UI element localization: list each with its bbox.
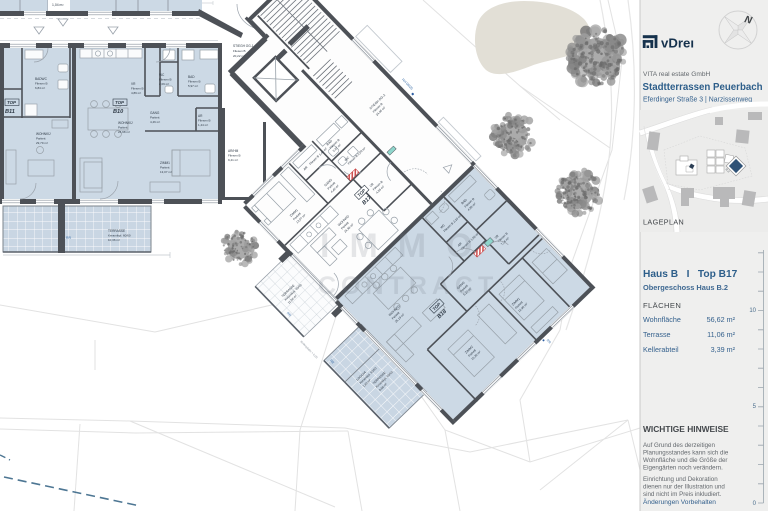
svg-text:B11: B11	[5, 109, 15, 115]
svg-text:GANG: GANG	[150, 111, 160, 115]
svg-text:Parkett: Parkett	[118, 126, 128, 130]
svg-text:CONTRACT: CONTRACT	[318, 272, 498, 300]
svg-text:WICHTIGE HINWEISE: WICHTIGE HINWEISE	[643, 424, 729, 434]
svg-text:Parkett: Parkett	[150, 116, 160, 120]
svg-text:AR/HM: AR/HM	[228, 149, 239, 153]
svg-text:Änderungen Vorbehalten: Änderungen Vorbehalten	[643, 498, 716, 506]
svg-text:VR: VR	[131, 82, 136, 86]
svg-text:4,46 m²: 4,46 m²	[150, 120, 160, 124]
svg-text:56,62 m²: 56,62 m²	[707, 315, 736, 324]
svg-text:LAGEPLAN: LAGEPLAN	[643, 218, 684, 227]
svg-text:6,84 m²: 6,84 m²	[35, 86, 45, 90]
svg-text:WOHNKÜ: WOHNKÜ	[36, 132, 51, 136]
svg-text:Stadtterrassen Peuerbach: Stadtterrassen Peuerbach	[643, 82, 763, 93]
svg-text:Wohnfläche und die Größe der: Wohnfläche und die Größe der	[643, 457, 728, 464]
svg-text:TERRASSE: TERRASSE	[108, 229, 125, 233]
svg-text:4,89 m²: 4,89 m²	[131, 91, 141, 95]
svg-text:ZIMM1: ZIMM1	[160, 161, 170, 165]
svg-text:sind nicht im Preis inkludiert: sind nicht im Preis inkludiert.	[643, 491, 722, 498]
svg-text:Fliesen B: Fliesen B	[233, 49, 246, 53]
svg-text:Wohnfläche: Wohnfläche	[643, 315, 681, 324]
svg-text:FLÄCHEN: FLÄCHEN	[643, 301, 681, 310]
svg-text:Fliesen B: Fliesen B	[35, 82, 48, 86]
svg-text:RR: RR	[66, 236, 71, 240]
svg-text:1,04 m²: 1,04 m²	[52, 3, 64, 7]
svg-text:WC: WC	[159, 73, 165, 77]
svg-text:29,79 m²: 29,79 m²	[36, 141, 48, 145]
svg-text:IMMO: IMMO	[320, 227, 493, 265]
svg-text:11,06 m²: 11,06 m²	[707, 330, 735, 339]
svg-text:24,98 m²: 24,98 m²	[118, 130, 130, 134]
svg-text:WOHNKÜ: WOHNKÜ	[118, 121, 133, 125]
svg-text:Haus B I Top B17: Haus B I Top B17	[643, 269, 738, 280]
svg-text:Obergeschoss Haus B.2: Obergeschoss Haus B.2	[643, 283, 728, 292]
svg-text:Einrichtung und Dekoration: Einrichtung und Dekoration	[643, 476, 718, 483]
svg-text:Fliesen B: Fliesen B	[198, 119, 211, 123]
svg-text:vDreı: vDreı	[661, 36, 694, 51]
svg-text:1,44 m²: 1,44 m²	[198, 123, 208, 127]
svg-text:Fliesen B: Fliesen B	[228, 154, 241, 158]
svg-text:BADWC: BADWC	[35, 77, 48, 81]
svg-text:STIEGH OG-1: STIEGH OG-1	[233, 44, 254, 48]
svg-text:Fliesen B: Fliesen B	[159, 78, 172, 82]
svg-text:TOP: TOP	[7, 100, 16, 105]
svg-text:3,39 m²: 3,39 m²	[711, 345, 736, 354]
svg-text:Parkett: Parkett	[160, 166, 170, 170]
svg-text:Kellerabteil: Kellerabteil	[643, 345, 679, 354]
svg-text:TOP: TOP	[115, 100, 124, 105]
svg-text:Terrasse: Terrasse	[643, 330, 671, 339]
svg-text:Planungsstandes kann sich die: Planungsstandes kann sich die	[643, 450, 729, 457]
svg-text:2,09 m²: 2,09 m²	[159, 82, 169, 86]
svg-text:Eferdinger Straße 3 | Narzisse: Eferdinger Straße 3 | Narzissenweg	[643, 97, 752, 104]
svg-text:10,36 m²: 10,36 m²	[108, 238, 120, 242]
svg-text:Eigengärten noch verändern.: Eigengärten noch verändern.	[643, 465, 723, 472]
svg-text:B10: B10	[113, 109, 124, 115]
svg-text:13,07 m²: 13,07 m²	[160, 170, 172, 174]
svg-text:Fliesen B: Fliesen B	[188, 80, 201, 84]
svg-text:AR: AR	[198, 114, 203, 118]
svg-text:10: 10	[749, 308, 756, 314]
svg-text:dienen nur der Illustration un: dienen nur der Illustration und	[643, 484, 725, 491]
svg-text:Fliesen B: Fliesen B	[131, 87, 144, 91]
svg-text:BAD: BAD	[188, 75, 195, 79]
svg-text:VITA real estate GmbH: VITA real estate GmbH	[643, 71, 711, 78]
svg-text:Keramikpl. 60/60: Keramikpl. 60/60	[108, 234, 131, 238]
svg-text:9,41 m²: 9,41 m²	[228, 158, 238, 162]
svg-text:Parkett: Parkett	[36, 137, 46, 141]
svg-text:5,97 m²: 5,97 m²	[188, 84, 198, 88]
svg-text:Auf Grund des derzeitigen: Auf Grund des derzeitigen	[643, 442, 715, 449]
